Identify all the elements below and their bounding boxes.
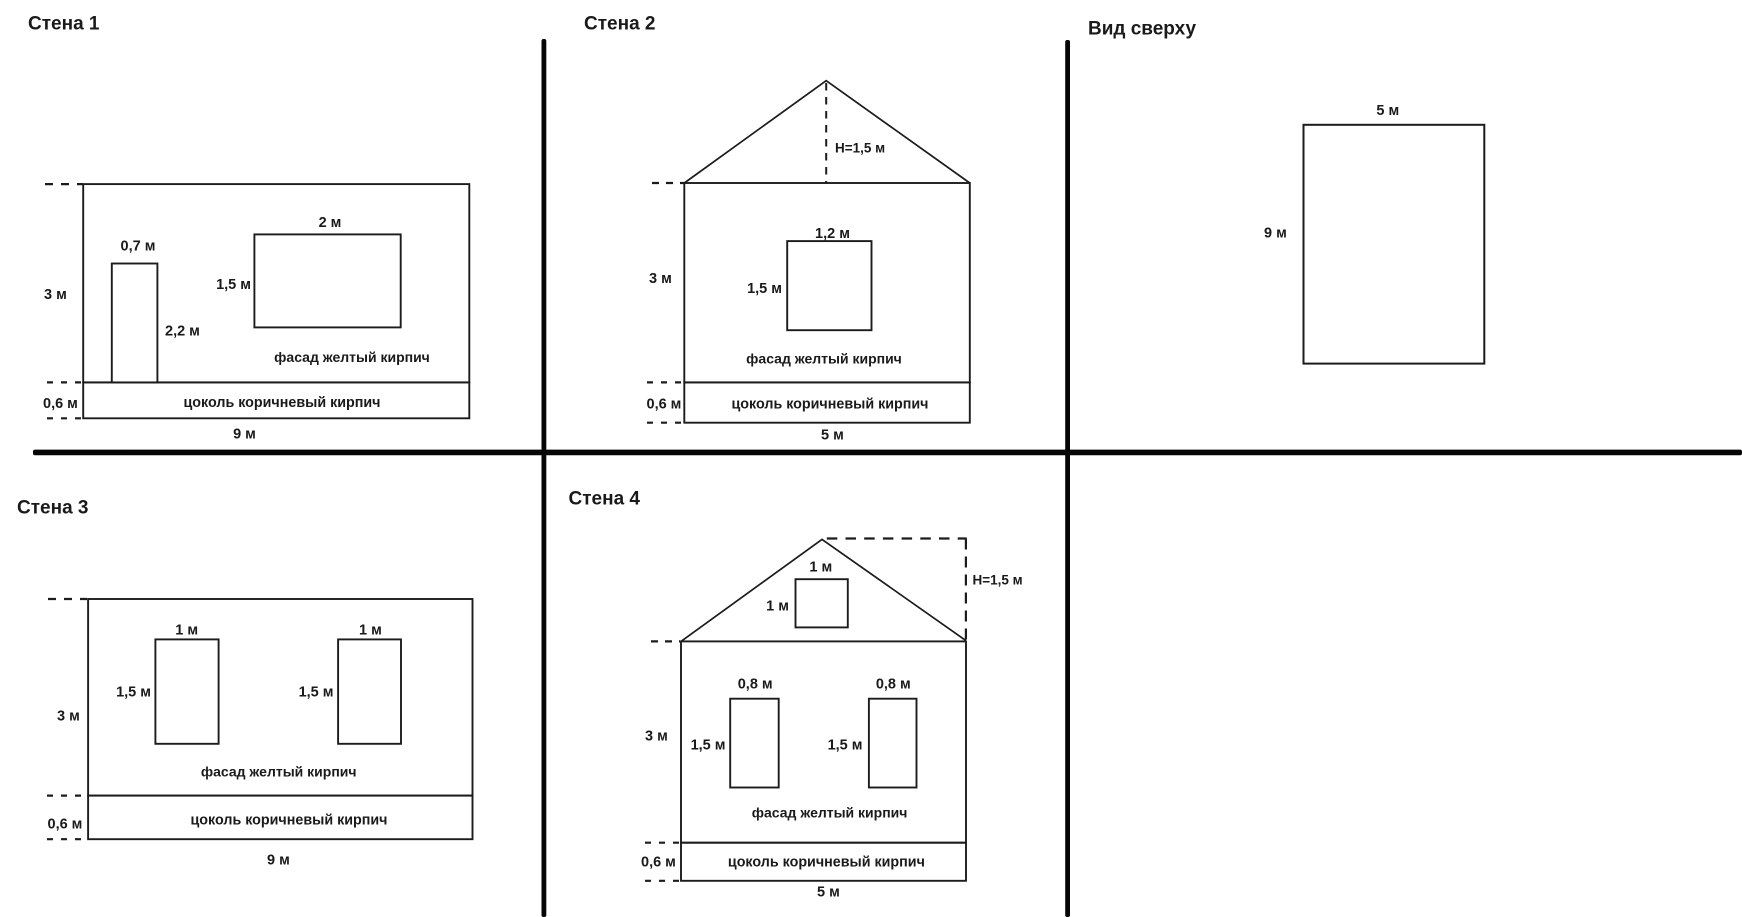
svg-text:1,5 м: 1,5 м [828,738,863,754]
svg-text:1,5 м: 1,5 м [216,277,251,293]
svg-text:H=1,5 м: H=1,5 м [973,573,1023,588]
svg-text:3 м: 3 м [44,287,67,303]
svg-text:0,7 м: 0,7 м [121,239,156,255]
svg-text:3 м: 3 м [645,729,668,745]
svg-text:1 м: 1 м [766,599,789,615]
svg-text:0,8 м: 0,8 м [738,677,773,693]
svg-text:0,6 м: 0,6 м [48,817,83,833]
svg-text:9 м: 9 м [267,853,290,869]
svg-text:3 м: 3 м [57,709,80,725]
svg-text:1,2 м: 1,2 м [815,226,850,242]
svg-text:фасад желтый кирпич: фасад желтый кирпич [752,805,908,821]
svg-text:0,6 м: 0,6 м [43,396,78,412]
svg-text:цоколь коричневый кирпич: цоколь коричневый кирпич [191,813,388,829]
svg-text:цоколь коричневый кирпич: цоколь коричневый кирпич [732,397,929,413]
svg-text:0,6 м: 0,6 м [647,397,682,413]
svg-text:5 м: 5 м [821,428,844,444]
svg-text:цоколь коричневый кирпич: цоколь коричневый кирпич [728,855,925,871]
svg-text:1 м: 1 м [359,623,382,639]
svg-text:Стена 4: Стена 4 [569,489,641,510]
svg-text:1,5 м: 1,5 м [747,281,782,297]
svg-text:1,5 м: 1,5 м [691,738,726,754]
svg-text:9 м: 9 м [1264,226,1287,242]
svg-text:9 м: 9 м [233,427,256,443]
svg-text:Стена 2: Стена 2 [584,14,655,35]
svg-text:0,6 м: 0,6 м [641,855,676,871]
svg-text:фасад желтый кирпич: фасад желтый кирпич [746,351,902,367]
svg-text:2,2 м: 2,2 м [165,324,200,340]
svg-text:1,5 м: 1,5 м [299,685,334,701]
svg-text:Вид сверху: Вид сверху [1088,19,1196,40]
svg-text:5 м: 5 м [1376,103,1399,119]
svg-text:фасад желтый кирпич: фасад желтый кирпич [201,764,357,780]
svg-text:1 м: 1 м [809,560,832,576]
svg-text:цоколь коричневый кирпич: цоколь коричневый кирпич [184,395,381,411]
svg-text:1 м: 1 м [175,623,198,639]
svg-text:Стена 1: Стена 1 [28,14,100,35]
svg-text:Стена 3: Стена 3 [17,498,88,519]
svg-text:фасад желтый кирпич: фасад желтый кирпич [274,349,430,365]
svg-text:5 м: 5 м [817,885,840,901]
svg-text:1,5 м: 1,5 м [116,685,151,701]
svg-text:3 м: 3 м [649,271,672,287]
svg-text:0,8 м: 0,8 м [876,677,911,693]
svg-text:2 м: 2 м [319,215,342,231]
svg-text:H=1,5 м: H=1,5 м [835,141,885,156]
